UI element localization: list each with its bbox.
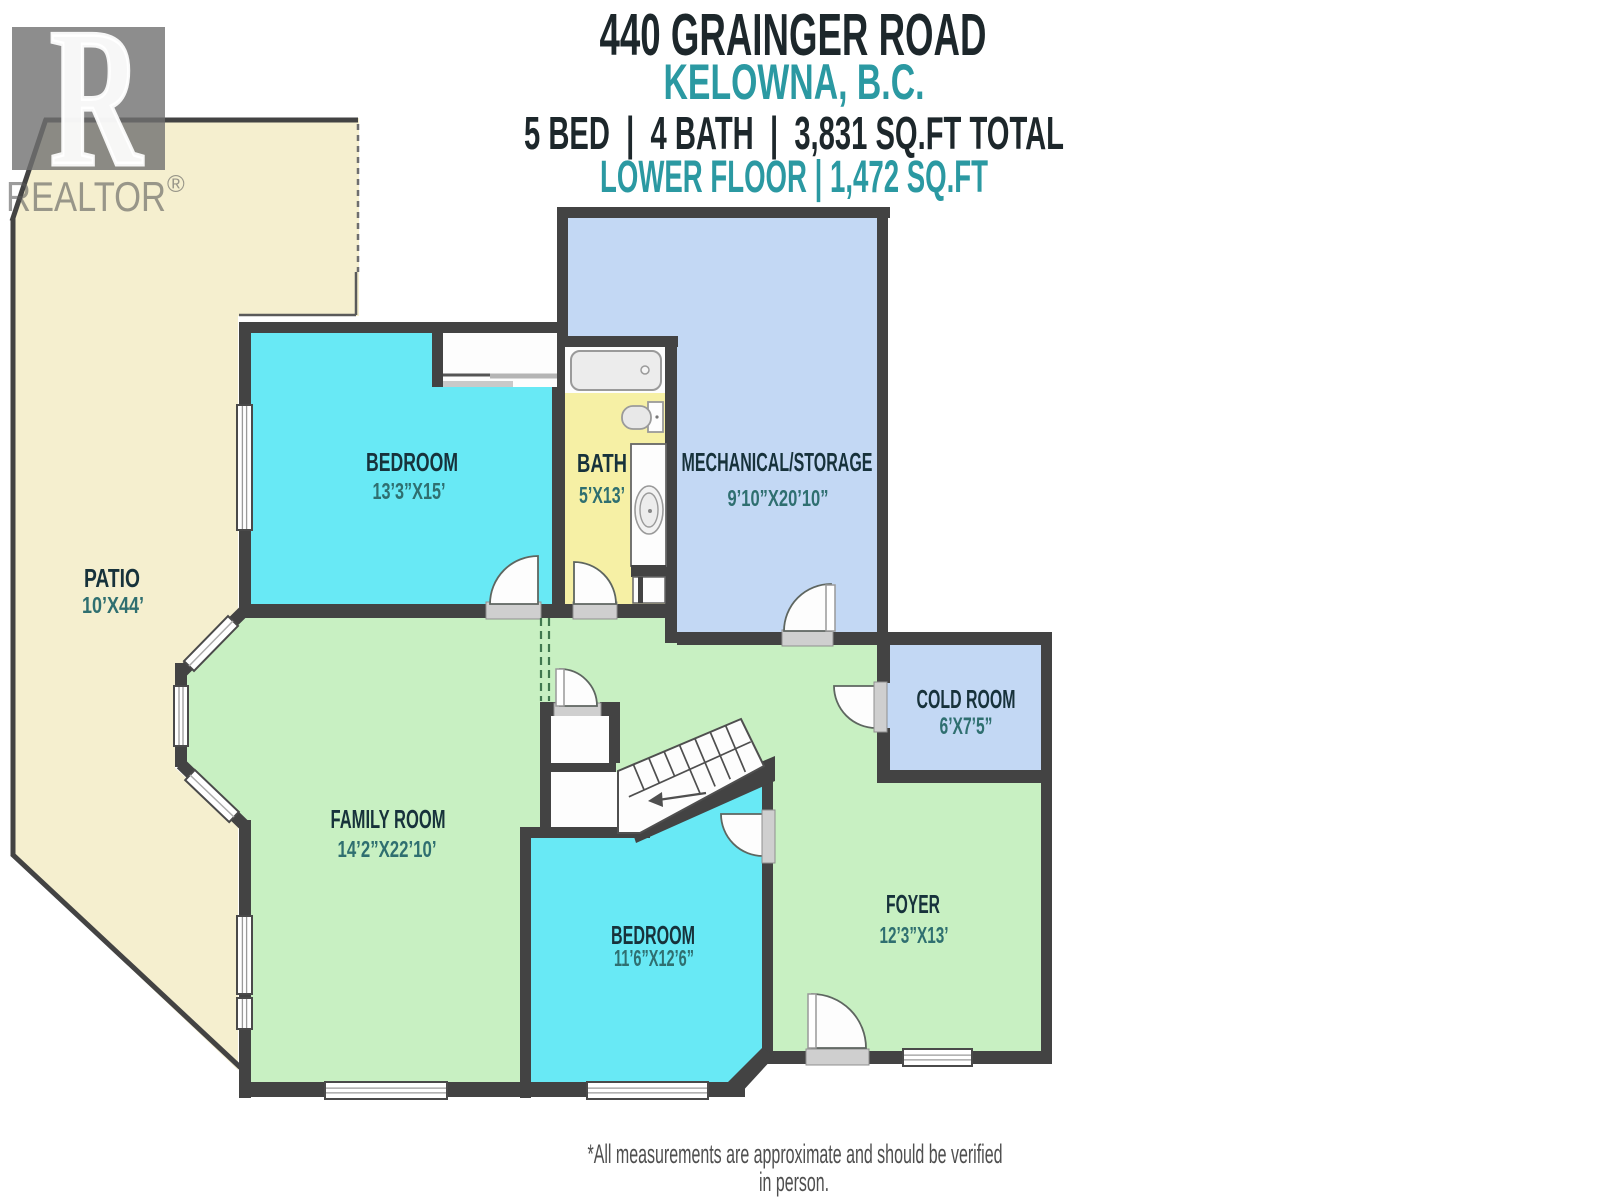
svg-text:10’X44’: 10’X44’ — [82, 592, 144, 618]
svg-text:in person.: in person. — [759, 1167, 829, 1197]
svg-text:KELOWNA, B.C.: KELOWNA, B.C. — [664, 54, 925, 110]
svg-text:BEDROOM: BEDROOM — [366, 447, 458, 477]
svg-text:FAMILY ROOM: FAMILY ROOM — [331, 804, 446, 834]
svg-text:12’3”X13’: 12’3”X13’ — [880, 922, 949, 948]
svg-text:13’3”X15’: 13’3”X15’ — [373, 478, 446, 504]
svg-text:®: ® — [167, 171, 185, 198]
svg-text:BATH: BATH — [577, 448, 627, 478]
svg-text:11’6”X12’6”: 11’6”X12’6” — [614, 945, 694, 971]
svg-text:MECHANICAL/STORAGE: MECHANICAL/STORAGE — [682, 447, 873, 477]
svg-text:COLD ROOM: COLD ROOM — [917, 684, 1016, 714]
svg-text:REALTOR: REALTOR — [6, 173, 166, 220]
svg-text:FOYER: FOYER — [886, 889, 940, 919]
svg-text:6’X7’5”: 6’X7’5” — [940, 713, 993, 740]
svg-text:PATIO: PATIO — [84, 563, 140, 593]
svg-text:9’10”X20’10”: 9’10”X20’10” — [728, 485, 829, 511]
svg-text:*All measurements are approxim: *All measurements are approximate and sh… — [588, 1139, 1003, 1169]
svg-text:14’2”X22’10’: 14’2”X22’10’ — [338, 836, 437, 862]
svg-text:5’X13’: 5’X13’ — [579, 482, 625, 508]
svg-text:LOWER FLOOR | 1,472 SQ.FT: LOWER FLOOR | 1,472 SQ.FT — [600, 151, 988, 203]
